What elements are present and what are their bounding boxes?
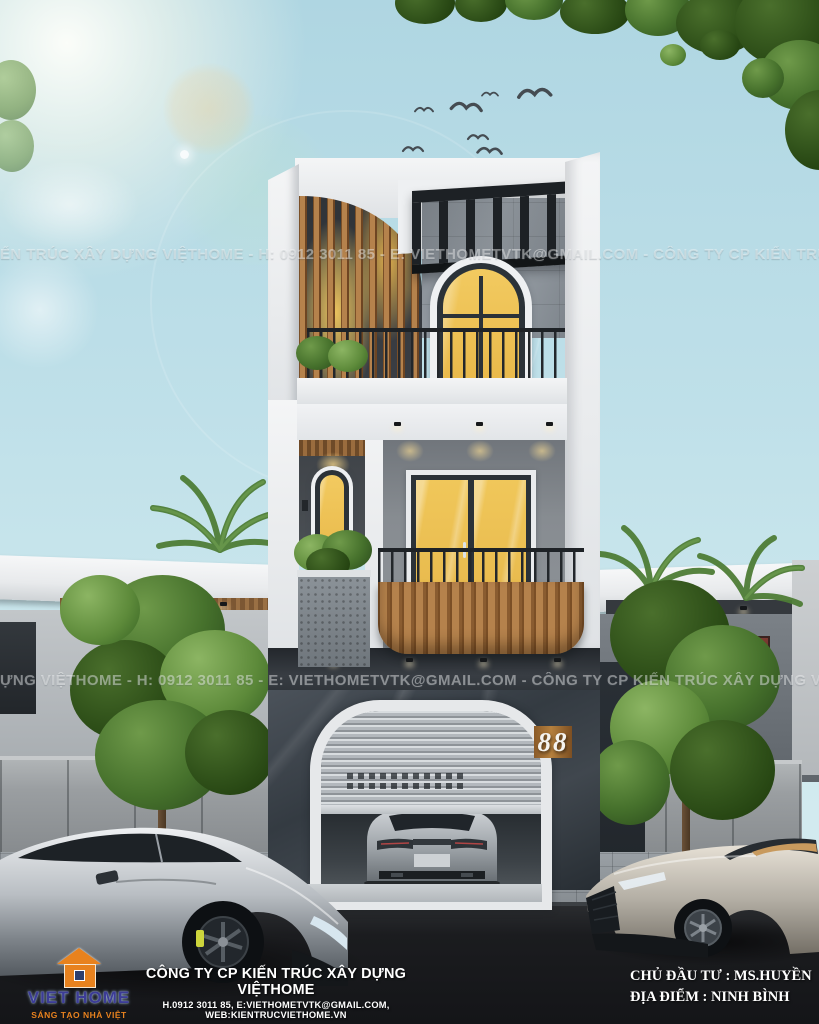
watermark-band: ỰNG VIỆTHOME - H: 0912 3011 85 - E: VIET… bbox=[0, 672, 819, 689]
parked-car-right bbox=[584, 826, 819, 968]
balcony-fascia-3f bbox=[297, 378, 567, 404]
balcony-wood-panel-2f bbox=[378, 582, 584, 654]
house-number-plaque: 88 bbox=[534, 726, 572, 758]
project-location: ĐỊA ĐIỂM : NINH BÌNH bbox=[630, 987, 815, 1008]
architectural-render-scene: 88 bbox=[0, 0, 819, 1024]
cloud bbox=[0, 160, 140, 250]
house-number: 88 bbox=[538, 727, 569, 758]
project-investor: CHỦ ĐẦU TƯ : MS.HUYỀN bbox=[630, 966, 815, 987]
shutter-bottom-bar bbox=[321, 805, 541, 814]
left-parapet-wall bbox=[268, 164, 299, 432]
company-name: CÔNG TY CP KIẾN TRÚC XÂY DỰNG VIỆTHOME bbox=[116, 966, 436, 998]
company-contact: H.0912 3011 85, E:VIETHOMETVTK@GMAIL.COM… bbox=[116, 1000, 436, 1020]
project-info: CHỦ ĐẦU TƯ : MS.HUYỀN ĐỊA ĐIỂM : NINH BÌ… bbox=[630, 966, 815, 1008]
left-column-2f bbox=[268, 400, 299, 666]
watermark-band: ẾN TRÚC XÂY DỰNG VIỆTHOME - H: 0912 3011… bbox=[0, 246, 819, 263]
roller-shutter bbox=[321, 711, 541, 807]
viethome-house-icon bbox=[56, 948, 102, 988]
cloud bbox=[0, 250, 100, 370]
wall-sconce bbox=[302, 500, 308, 511]
lens-flare-dot bbox=[180, 150, 189, 159]
car-in-garage bbox=[357, 803, 507, 888]
company-info: CÔNG TY CP KIẾN TRÚC XÂY DỰNG VIỆTHOME H… bbox=[116, 966, 436, 1020]
soffit-2f bbox=[297, 402, 567, 440]
